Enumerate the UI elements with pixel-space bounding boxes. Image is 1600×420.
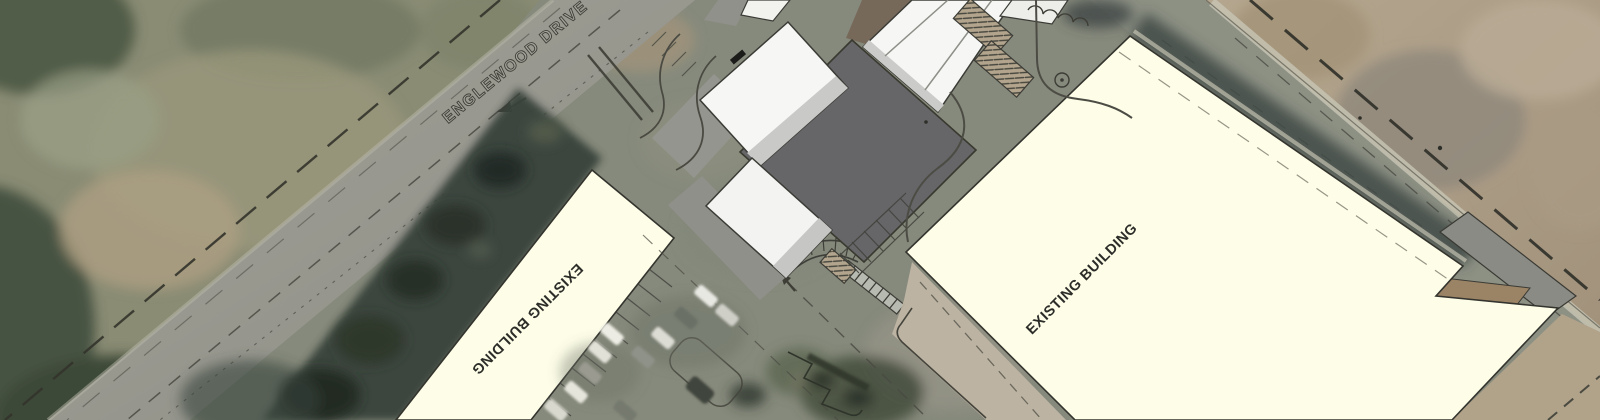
utility-symbol-dot	[1060, 78, 1064, 82]
site-plan-image: ENGLEWOOD DRIVE EXISTING BUILDING	[0, 0, 1600, 420]
